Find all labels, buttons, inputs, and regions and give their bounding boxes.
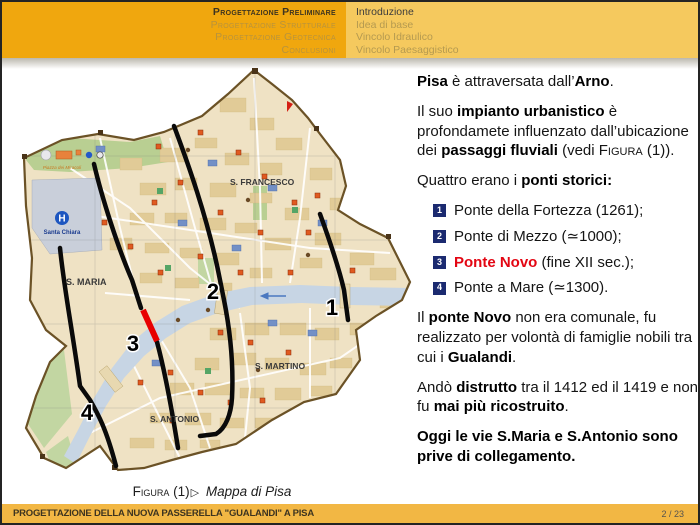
subsection-nav: Introduzione Idea di base Vincolo Idraul… [346, 2, 698, 58]
list-badge-1: 1 [433, 204, 446, 217]
presentation-slide: Progettazione Preliminare Progettazione … [0, 0, 700, 525]
paragraph-ponte-novo: Il ponte Novo non era comunale, fu reali… [417, 308, 700, 367]
section-nav: Progettazione Preliminare Progettazione … [2, 2, 346, 58]
figure-caption: Figura (1)▷ Mappa di Pisa [10, 484, 414, 499]
caption-triangle-icon: ▷ [191, 487, 199, 499]
list-text-2: Ponte di Mezzo (≃1000); [454, 227, 622, 247]
list-item: 4 Ponte a Mare (≃1300). [433, 278, 700, 298]
nav-conclusioni[interactable]: Conclusioni [2, 44, 336, 57]
list-text-4: Ponte a Mare (≃1300). [454, 278, 608, 298]
list-badge-2: 2 [433, 230, 446, 243]
district-s-antonio: S. ANTONIO [150, 414, 200, 424]
miracoli-label: Piazza dei Miracoli [43, 165, 82, 170]
district-s-maria: S. MARIA [66, 277, 107, 287]
route-number-1: 1 [326, 295, 338, 320]
bridge-list: 1 Ponte della Fortezza (1261); 2 Ponte d… [417, 201, 700, 298]
subnav-vincolo-paesaggistico[interactable]: Vincolo Paesaggistico [356, 44, 698, 57]
page-number: 2 / 23 [661, 509, 684, 519]
subnav-vincolo-idraulico[interactable]: Vincolo Idraulico [356, 31, 698, 44]
hospital-name: Santa Chiara [44, 230, 81, 236]
caption-figura: Figura [133, 484, 170, 499]
list-item: 3 Ponte Novo (fine XII sec.); [433, 253, 700, 273]
route-number-2: 2 [207, 279, 219, 304]
footer-bar: PROGETTAZIONE DELLA NUOVA PASSERELLA "GU… [2, 503, 698, 523]
district-s-martino: S. MARTINO [255, 361, 305, 371]
list-badge-3: 3 [433, 256, 446, 269]
paragraph-impianto-urbanistico: Il suo impianto urbanistico è profondame… [417, 102, 700, 161]
nav-progettazione-strutturale[interactable]: Progettazione Strutturale [2, 19, 336, 32]
paragraph-oggi: Oggi le vie S.Maria e S.Antonio sono pri… [417, 427, 700, 467]
pisa-map: Piazza dei Miracoli H Santa Chia [10, 68, 414, 480]
district-s-francesco: S. FRANCESCO [230, 177, 295, 187]
route-number-3: 3 [127, 331, 139, 356]
subnav-introduzione[interactable]: Introduzione [356, 6, 698, 19]
list-item: 2 Ponte di Mezzo (≃1000); [433, 227, 700, 247]
list-text-1: Ponte della Fortezza (1261); [454, 201, 643, 221]
hospital-letter: H [58, 214, 65, 225]
pisa-map-figure: Piazza dei Miracoli H Santa Chia [10, 68, 414, 480]
header-bar: Progettazione Preliminare Progettazione … [2, 2, 698, 58]
footer-title: PROGETTAZIONE DELLA NUOVA PASSERELLA "GU… [13, 508, 314, 519]
caption-number: (1) [173, 484, 190, 499]
paragraph-pisa-arno: Pisa è attraversata dall’Arno. [417, 72, 700, 92]
list-item: 1 Ponte della Fortezza (1261); [433, 201, 700, 221]
route-number-4: 4 [81, 400, 94, 425]
subnav-idea-di-base[interactable]: Idea di base [356, 19, 698, 32]
slide-body-text: Pisa è attraversata dall’Arno. Il suo im… [417, 72, 700, 477]
paragraph-ponti-storici: Quattro erano i ponti storici: [417, 171, 700, 191]
list-badge-4: 4 [433, 282, 446, 295]
nav-progettazione-preliminare[interactable]: Progettazione Preliminare [2, 6, 336, 19]
nav-progettazione-geotecnica[interactable]: Progettazione Geotecnica [2, 31, 336, 44]
caption-title: Mappa di Pisa [206, 484, 292, 499]
list-text-3: Ponte Novo (fine XII sec.); [454, 253, 634, 273]
paragraph-distrutto: Andò distrutto tra il 1412 ed il 1419 e … [417, 378, 700, 418]
